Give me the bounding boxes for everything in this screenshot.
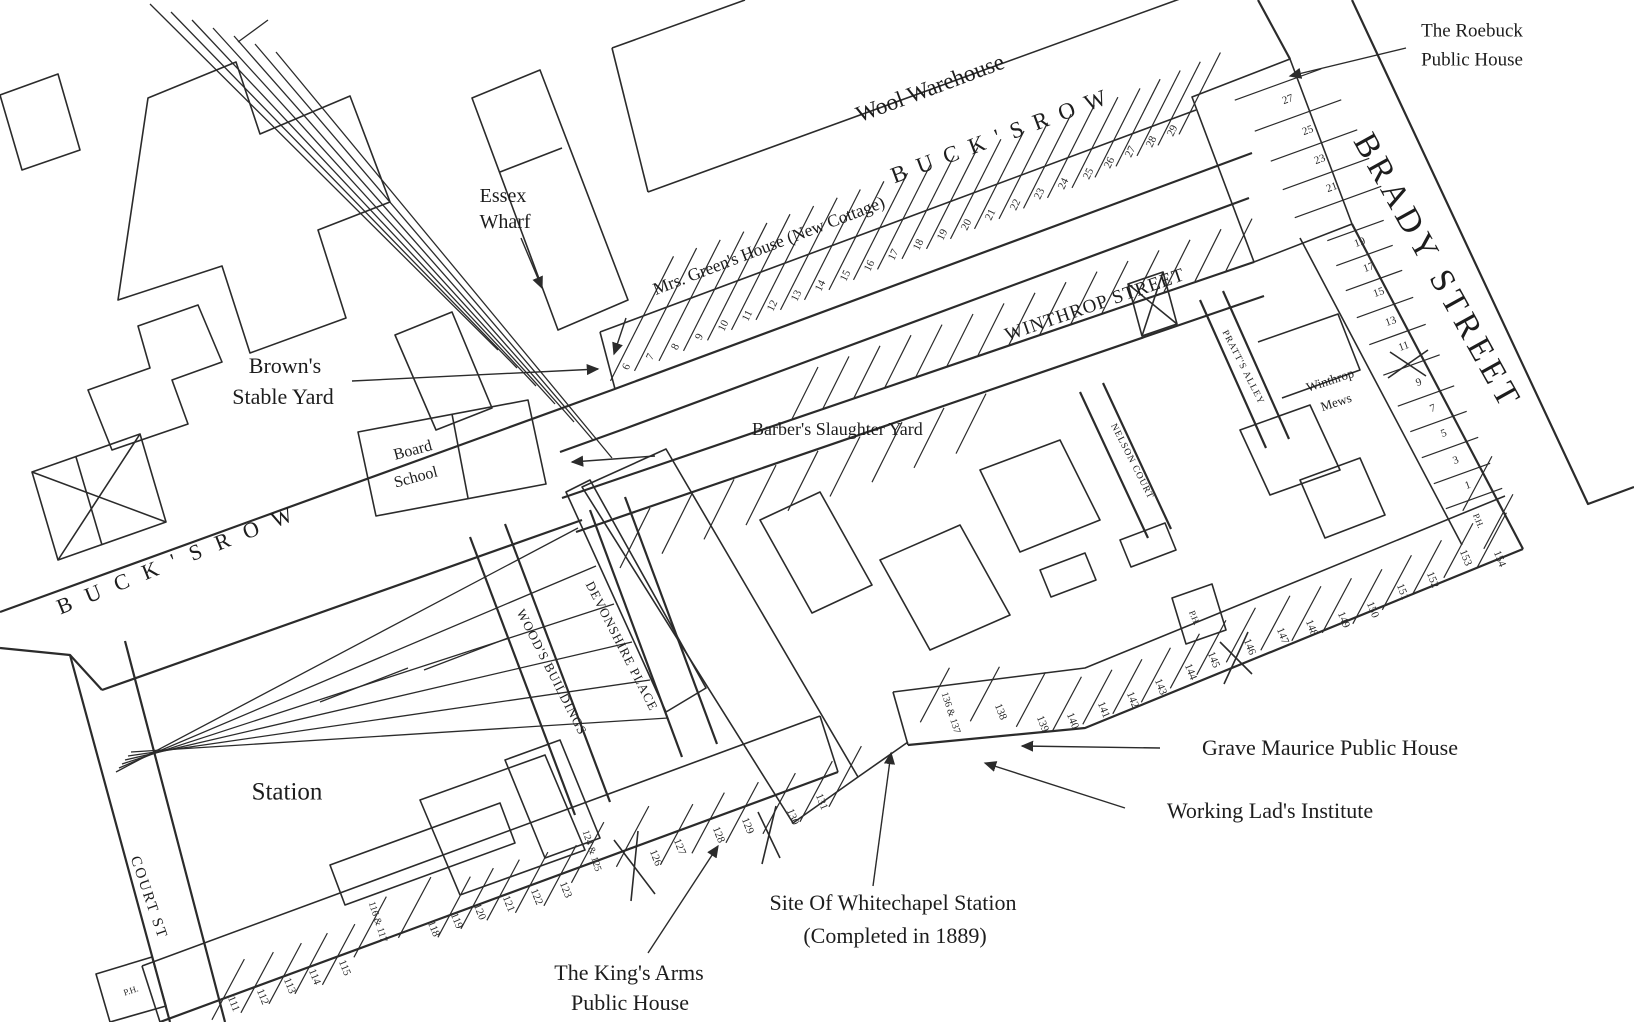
essex-wharf-label-line1: Essex	[480, 186, 527, 206]
whitechapel-station-label-line1: Site Of Whitechapel Station	[769, 892, 1016, 914]
working-lads-institute-label: Working Lad's Institute	[1167, 800, 1373, 822]
browns-stable-yard-label-line1: Brown's	[249, 355, 321, 377]
working-lads-arrow	[985, 763, 1125, 808]
grave-maurice-label: Grave Maurice Public House	[1202, 737, 1458, 759]
kings-arms-label-line1: The King's Arms	[554, 962, 703, 984]
essex-wharf-arrow	[521, 238, 542, 288]
whitechapel-station-label-line2: (Completed in 1889)	[803, 925, 986, 947]
browns-stable-yard-label-line2: Stable Yard	[232, 386, 333, 408]
essex-wharf-label-line2: Wharf	[479, 212, 530, 232]
station-label: Station	[252, 780, 323, 805]
roebuck-label-line2: Public House	[1421, 51, 1523, 70]
station-site-arrow	[873, 753, 891, 886]
map: Wool Warehouse B U C K ' S R O W Mrs. Gr…	[0, 0, 1634, 1022]
kings-arms-label-line2: Public House	[571, 992, 689, 1014]
roebuck-label-line1: The Roebuck	[1421, 22, 1523, 41]
mrs-greens-arrow	[614, 318, 626, 354]
roebuck-arrow	[1290, 48, 1406, 76]
browns-arrow	[352, 369, 598, 381]
grave-maurice-arrow	[1022, 746, 1160, 748]
barbers-slaughter-yard-label: Barber's Slaughter Yard	[752, 420, 923, 438]
